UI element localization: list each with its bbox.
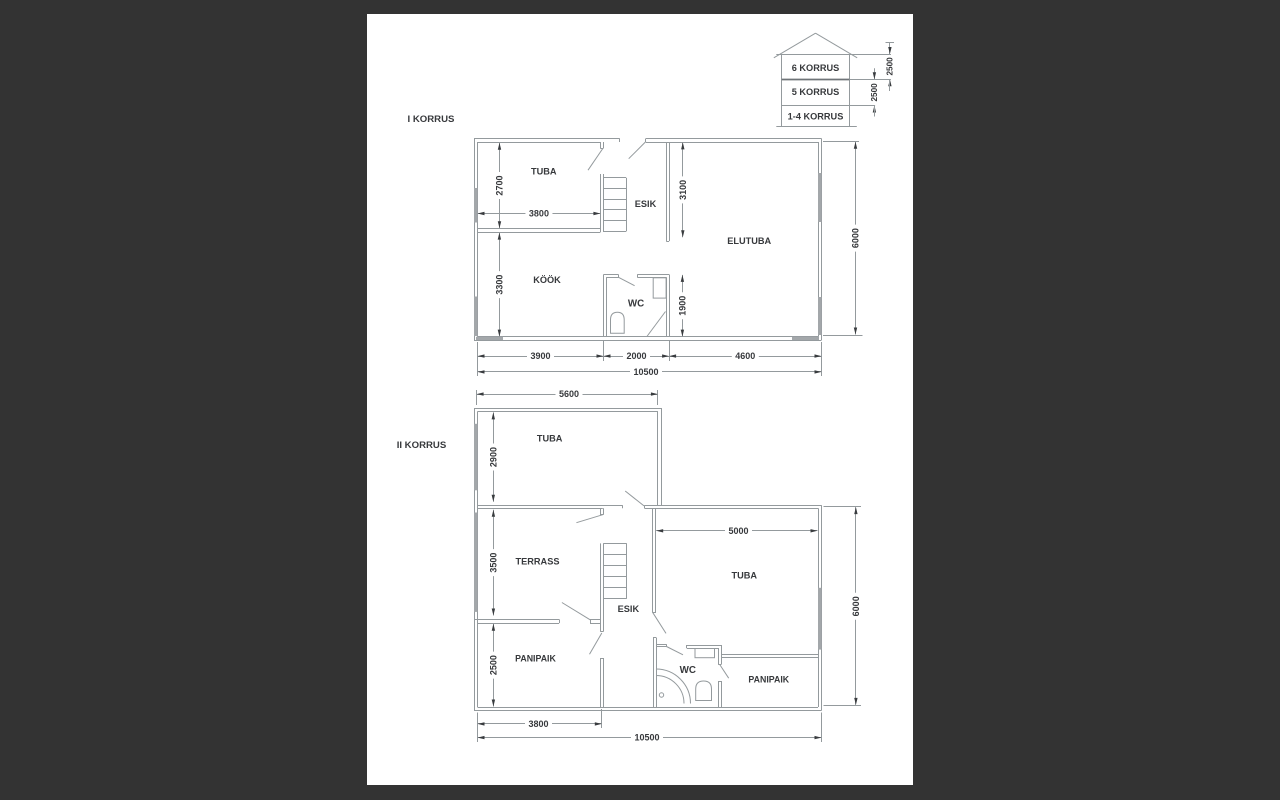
svg-text:6000: 6000 (851, 228, 861, 248)
svg-text:WC: WC (628, 299, 644, 310)
svg-text:2500: 2500 (886, 57, 895, 76)
svg-text:WC: WC (680, 665, 696, 676)
svg-text:ESIK: ESIK (635, 199, 657, 209)
svg-text:II KORRUS: II KORRUS (397, 440, 447, 451)
svg-text:2500: 2500 (870, 83, 879, 102)
svg-text:TUBA: TUBA (537, 433, 563, 443)
svg-text:3500: 3500 (488, 553, 498, 573)
svg-text:PANIPAIK: PANIPAIK (515, 653, 556, 663)
svg-text:3300: 3300 (494, 275, 504, 295)
svg-text:6 KORRUS: 6 KORRUS (792, 63, 839, 73)
svg-text:10500: 10500 (633, 367, 658, 377)
svg-text:1900: 1900 (677, 296, 687, 316)
svg-text:2900: 2900 (488, 447, 498, 467)
svg-text:TUBA: TUBA (732, 571, 758, 581)
svg-text:5 KORRUS: 5 KORRUS (792, 87, 839, 97)
svg-text:ELUTUBA: ELUTUBA (727, 236, 771, 246)
svg-text:ESIK: ESIK (618, 604, 640, 614)
svg-text:4600: 4600 (735, 351, 755, 361)
svg-text:3900: 3900 (530, 351, 550, 361)
svg-text:6000: 6000 (851, 596, 861, 616)
svg-text:3800: 3800 (529, 209, 549, 219)
svg-text:5000: 5000 (728, 526, 748, 536)
svg-text:TERRASS: TERRASS (516, 556, 560, 566)
svg-text:I KORRUS: I KORRUS (408, 114, 456, 125)
svg-text:10500: 10500 (634, 733, 659, 743)
svg-text:TUBA: TUBA (531, 167, 557, 177)
svg-text:3800: 3800 (528, 719, 548, 729)
svg-text:2500: 2500 (488, 655, 498, 675)
svg-text:2700: 2700 (495, 176, 505, 196)
svg-text:1-4 KORRUS: 1-4 KORRUS (788, 111, 844, 121)
svg-text:3100: 3100 (678, 180, 688, 200)
svg-text:2000: 2000 (626, 351, 646, 361)
svg-text:5600: 5600 (559, 389, 579, 399)
svg-text:KÖÖK: KÖÖK (533, 275, 561, 285)
svg-text:PANIPAIK: PANIPAIK (748, 675, 789, 685)
